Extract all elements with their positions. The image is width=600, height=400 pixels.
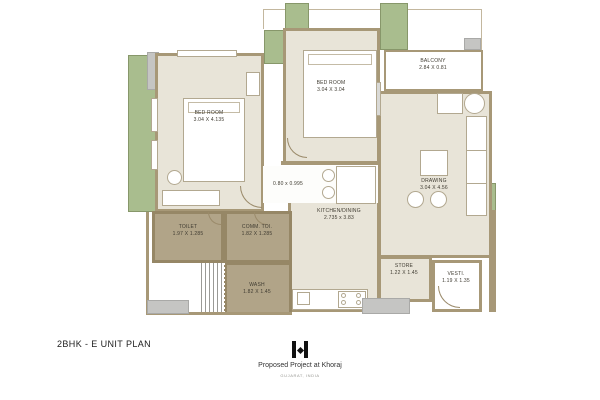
- room-dim: 1.82 X 1.45: [222, 289, 292, 296]
- room-dim: 2.735 x 3.83: [294, 215, 384, 222]
- logo-bar-right: [304, 341, 308, 358]
- label-balcony: BALCONY 2.84 X 0.81: [393, 58, 473, 72]
- wall-outer-right: [489, 210, 496, 312]
- room-name: STORE: [369, 263, 439, 270]
- room-dim: 3.04 X 3.04: [291, 87, 371, 94]
- wardrobe-bedroom-1: [162, 190, 220, 206]
- label-wash: WASH 1.82 X 1.45: [222, 282, 292, 296]
- floor-plan: BED ROOM 3.04 X 4.135 BED ROOM 3.04 X 3.…: [0, 0, 600, 400]
- label-drawing: DRAWING 3.04 X 4.56: [394, 178, 474, 192]
- planter-top-b: [264, 30, 284, 64]
- round-table-drawing: [464, 93, 485, 114]
- logo-bar-left: [292, 341, 296, 358]
- bed-2-pillow: [308, 54, 372, 65]
- label-toilet: TOILET 1.97 X 1.285: [153, 224, 223, 238]
- stool-bedroom-1: [167, 170, 182, 185]
- planter-top-right: [380, 3, 408, 50]
- label-kitchen-dining: KITCHEN/DINING 2.735 x 3.83: [294, 208, 384, 222]
- room-dim: 1.19 X 1.35: [421, 278, 491, 285]
- room-name: VESTI.: [421, 271, 491, 278]
- room-name: DRAWING: [394, 178, 474, 185]
- side-table-drawing: [437, 93, 463, 114]
- bed-2: [303, 50, 377, 138]
- bedside-table-1: [246, 72, 260, 96]
- terrace-line-left: [263, 9, 264, 29]
- label-passage-dim: 0.80 x 0.995: [253, 181, 323, 187]
- logo-diamond: [296, 346, 303, 353]
- stove-burner: [356, 293, 361, 298]
- dining-chair-2: [322, 186, 335, 199]
- room-name: BALCONY: [393, 58, 473, 65]
- dining-table: [336, 166, 376, 204]
- stove-burner: [341, 300, 346, 305]
- room-name: COMM. TOI.: [222, 224, 292, 231]
- room-dim: 2.84 X 0.81: [393, 65, 473, 72]
- window-bedroom1-left-b: [151, 140, 158, 170]
- room-name: WASH: [222, 282, 292, 289]
- window-bedroom1-top: [177, 50, 237, 57]
- room-dim: 3.04 X 4.56: [394, 185, 474, 192]
- step-bottom-left: [147, 300, 189, 314]
- label-bedroom-2: BED ROOM 3.04 X 3.04: [291, 80, 371, 94]
- planter-top-a: [285, 3, 309, 29]
- room-dim: 3.04 X 4.135: [169, 117, 249, 124]
- label-vestibule: VESTI. 1.19 X 1.35: [421, 271, 491, 285]
- room-dim: 1.82 X 1.285: [222, 231, 292, 238]
- sofa-divider: [467, 150, 486, 151]
- plan-title: 2BHK - E UNIT PLAN: [57, 339, 151, 349]
- project-name: Proposed Project at Khoraj: [220, 362, 380, 369]
- wall-passage: [281, 161, 380, 165]
- room-name: TOILET: [153, 224, 223, 231]
- room-dim: 1.97 X 1.285: [153, 231, 223, 238]
- entrance-step: [362, 298, 410, 314]
- stove-burner: [341, 293, 346, 298]
- stove-burner: [356, 300, 361, 305]
- terrace-line-right: [481, 9, 482, 51]
- gray-ledge-balcony: [464, 38, 481, 50]
- room-name: BED ROOM: [291, 80, 371, 87]
- sofa-drawing: [466, 116, 487, 216]
- chair-drawing-2: [430, 191, 447, 208]
- room-name: KITCHEN/DINING: [294, 208, 384, 215]
- room-name: BED ROOM: [169, 110, 249, 117]
- project-logo-icon: [290, 341, 310, 359]
- project-location: GUJARAT, INDIA: [220, 373, 380, 378]
- label-common-toilet: COMM. TOI. 1.82 X 1.285: [222, 224, 292, 238]
- kitchen-sink: [297, 292, 310, 305]
- dining-chair-1: [322, 169, 335, 182]
- label-bedroom-1: BED ROOM 3.04 X 4.135: [169, 110, 249, 124]
- coffee-table-drawing: [420, 150, 448, 176]
- window-bedroom1-left-a: [151, 98, 158, 132]
- chair-drawing-1: [407, 191, 424, 208]
